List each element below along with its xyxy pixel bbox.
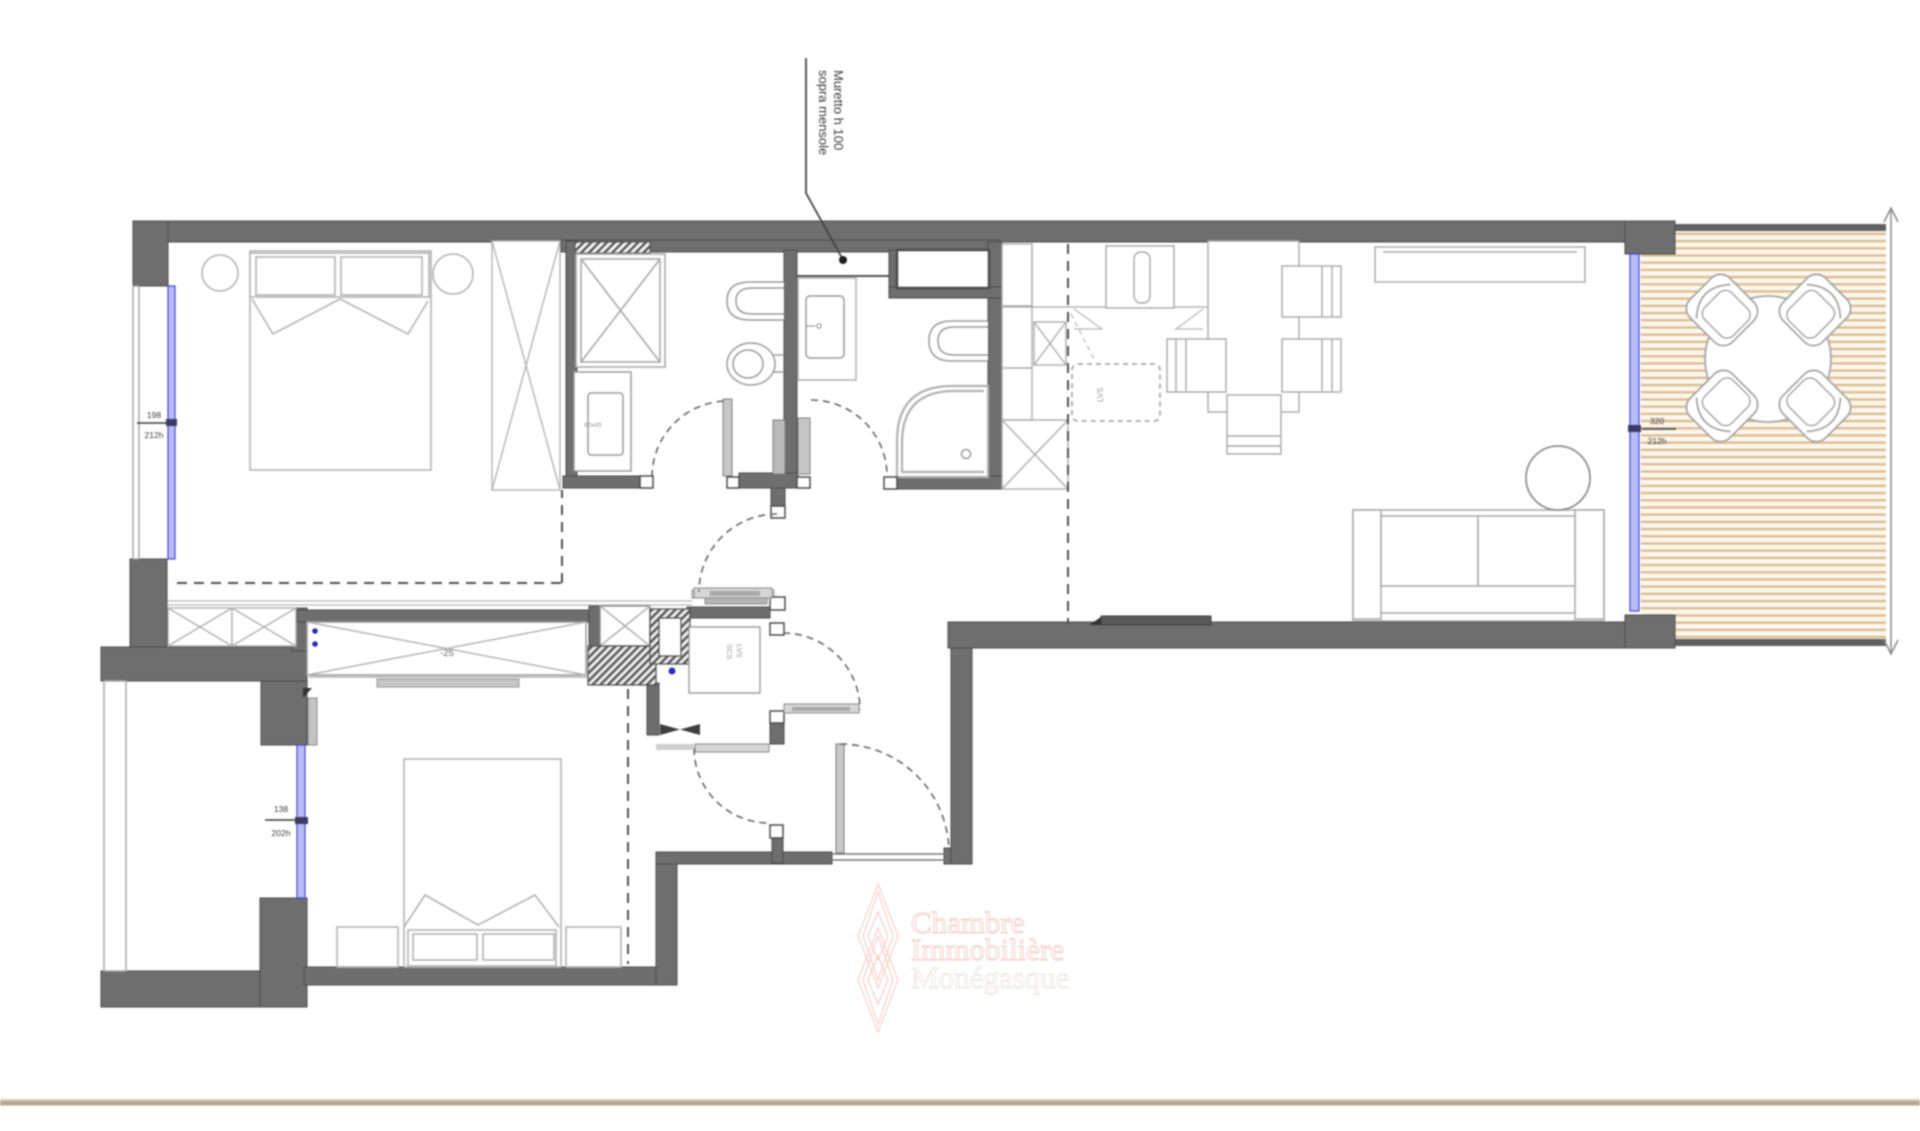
svg-text:-25: -25 xyxy=(440,648,454,659)
svg-text:LVS: LVS xyxy=(735,644,744,658)
svg-text:198: 198 xyxy=(147,410,161,420)
svg-text:Muretto h 100: Muretto h 100 xyxy=(831,70,846,150)
svg-text:LVS: LVS xyxy=(1096,387,1105,402)
svg-text:60x45: 60x45 xyxy=(584,422,602,429)
svg-text:SCS: SCS xyxy=(725,644,734,659)
svg-text:138: 138 xyxy=(274,804,288,814)
svg-text:212h: 212h xyxy=(145,430,164,440)
svg-text:Monégasque: Monégasque xyxy=(911,960,1069,995)
svg-text:sopra mensole: sopra mensole xyxy=(816,70,831,155)
svg-text:320: 320 xyxy=(1650,416,1664,426)
svg-text:202h: 202h xyxy=(272,828,291,838)
svg-text:212h: 212h xyxy=(1648,436,1667,446)
